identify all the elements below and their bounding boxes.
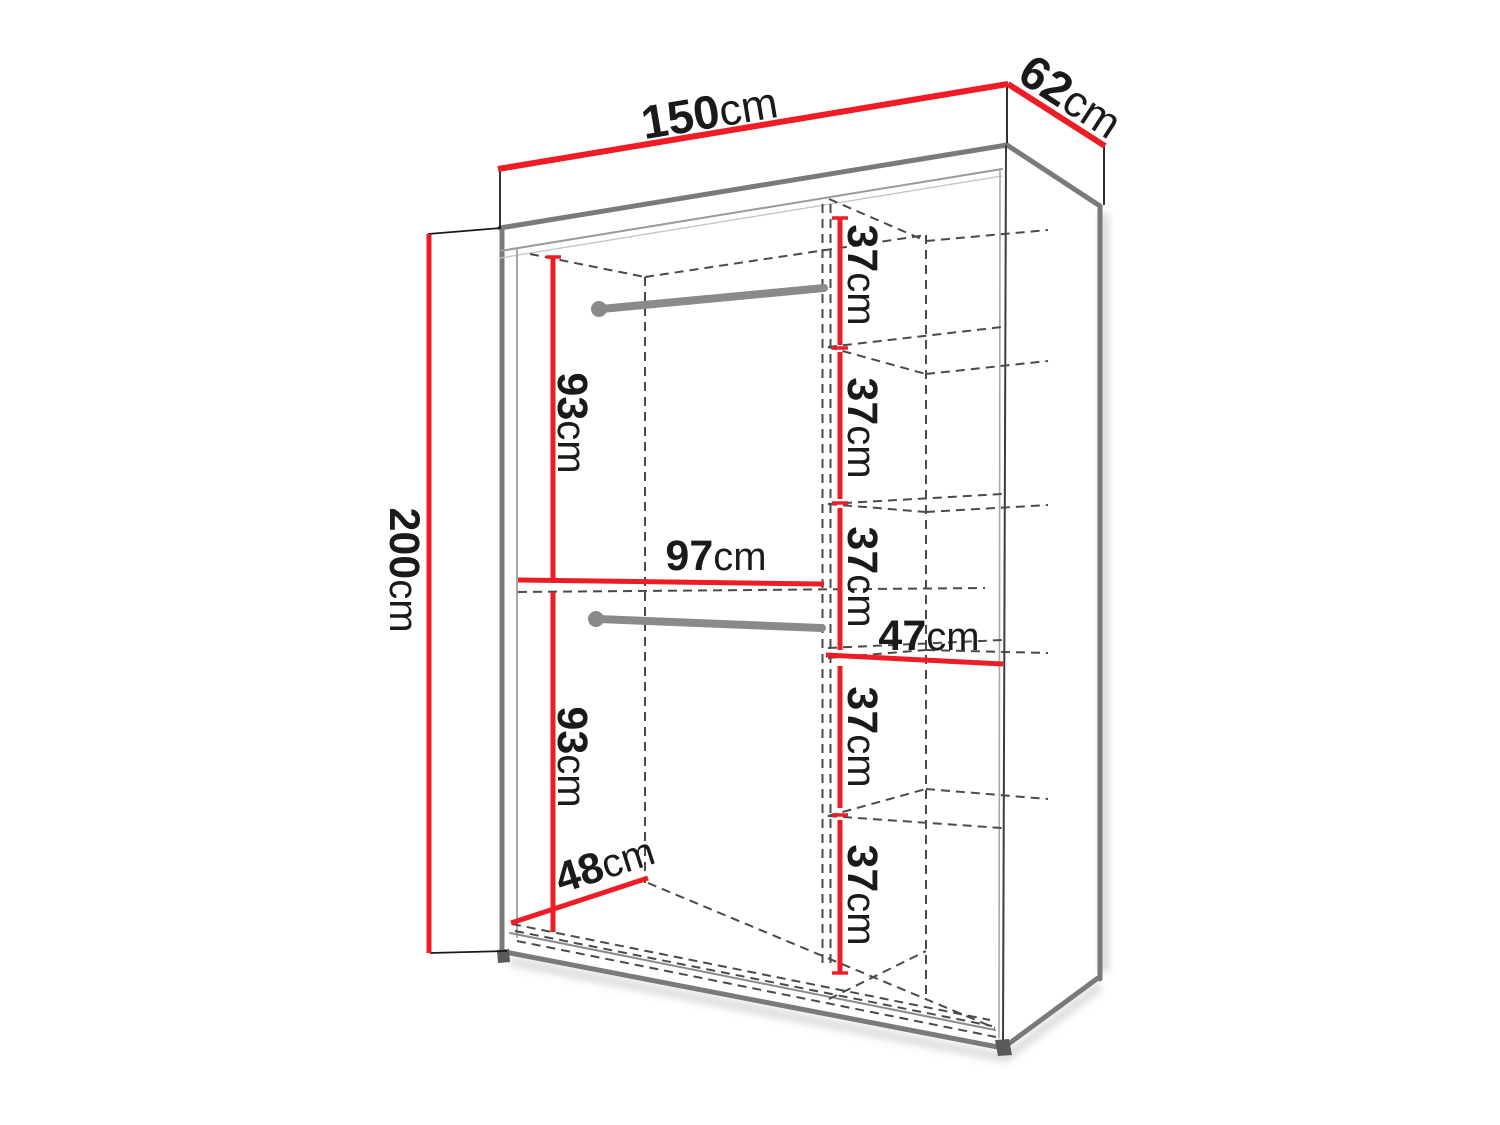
foot-right (995, 1039, 1012, 1056)
dim-label-bottom-hanging: 93cm (548, 706, 596, 807)
hanging-rail-top-end (591, 301, 607, 317)
diagram-canvas: 150cm 62cm 200cm 93cm 93cm 97cm 47cm 48c… (0, 0, 1500, 1125)
dim-label-shelf-5: 37cm (838, 844, 886, 945)
hanging-rail-bottom-end (588, 611, 604, 627)
dim-label-width: 150cm (637, 74, 781, 149)
dim-label-hanging-width: 97cm (665, 532, 766, 580)
extension-lines (428, 82, 1104, 953)
hanging-rail-top (601, 288, 824, 309)
shadow (509, 214, 1104, 1058)
dimension-labels: 150cm 62cm 200cm 93cm 93cm 97cm 47cm 48c… (380, 44, 1132, 946)
dim-label-shelf-1: 37cm (838, 224, 886, 325)
dim-label-shelf-3: 37cm (838, 526, 886, 627)
dim-label-shelf-width: 47cm (878, 612, 979, 660)
dim-label-shelf-4: 37cm (838, 686, 886, 787)
dim-label-top-hanging: 93cm (548, 372, 596, 473)
hanging-rail-bottom (598, 619, 822, 628)
dimension-line-hanging-width (518, 580, 824, 584)
wardrobe-outline (497, 145, 1100, 1056)
dim-label-height: 200cm (380, 507, 428, 632)
dim-label-shelf-2: 37cm (838, 377, 886, 478)
wardrobe-dimension-diagram: 150cm 62cm 200cm 93cm 93cm 97cm 47cm 48c… (0, 0, 1500, 1125)
dim-label-depth: 62cm (1010, 44, 1132, 149)
